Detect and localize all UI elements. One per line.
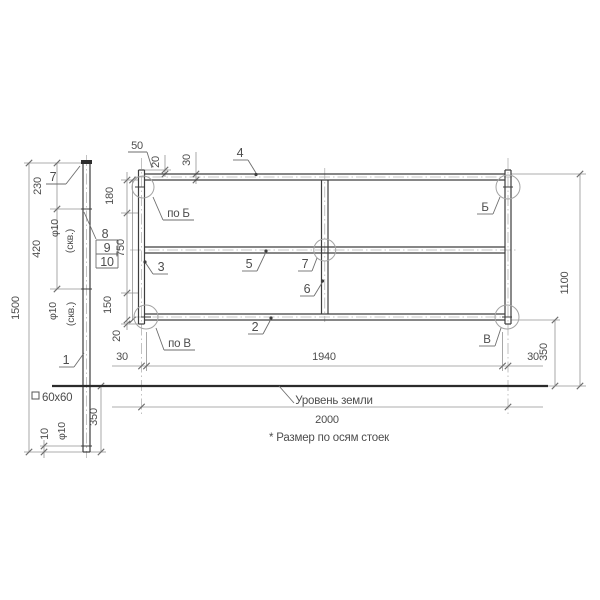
dim-post-axes-span: 2000 [315, 414, 339, 426]
item-label-1: 1 [63, 353, 70, 367]
item-label-2: 2 [252, 320, 259, 334]
dim-post-height: 1500 [10, 296, 22, 320]
ground-level-label: Уровень земли [295, 395, 372, 407]
square-section-icon [32, 392, 39, 399]
dim-top-total: 50 [131, 140, 143, 152]
post-top-cap [81, 160, 92, 164]
bottom-hole-diameter: φ10 [56, 422, 68, 440]
stack-item-10: 10 [100, 255, 114, 269]
section-marker-b: Б [481, 202, 488, 214]
dim-rail-to-ground: 350 [538, 343, 550, 361]
item-label-5: 5 [246, 257, 253, 271]
hole2-through-note: (скв.) [65, 302, 77, 326]
drawing-area: 1500 230 420 φ10 (скв.) φ10 (скв.) 350 1… [0, 0, 600, 600]
dim-height-above-ground: 1100 [559, 271, 571, 294]
dim-clear-length: 1940 [312, 351, 336, 363]
detail-circles [132, 175, 520, 329]
front-view-dimensions: 20 30 50 180 150 20 750 30 1940 30 2000 [102, 140, 586, 426]
item-label-7-front: 7 [302, 257, 309, 271]
post-profile-label: 60x60 [42, 392, 72, 404]
stack-item-8: 8 [102, 227, 109, 241]
hole2-diameter: φ10 [47, 302, 59, 320]
dim-left-end: 30 [116, 351, 128, 363]
section-marker-v: В [483, 334, 491, 346]
dim-rail-to-hole: 180 [104, 187, 116, 205]
item-label-4: 4 [237, 146, 244, 160]
item-label-3: 3 [158, 260, 165, 274]
dim-clear-height: 750 [115, 239, 127, 257]
dim-bottom-offset: 20 [111, 330, 123, 342]
dim-rail-height: 30 [181, 154, 193, 166]
hole1-diameter: φ10 [49, 219, 61, 237]
axes-note: * Размер по осям стоек [269, 432, 390, 444]
stack-item-9: 9 [104, 241, 111, 255]
item-label-7-side: 7 [50, 170, 57, 184]
drawing-canvas: 1500 230 420 φ10 (скв.) φ10 (скв.) 350 1… [0, 0, 600, 600]
dim-top-to-hole: 230 [32, 177, 44, 195]
dim-hole-spacing: 420 [31, 240, 43, 258]
dim-bottom-hole-offset: 10 [39, 428, 51, 440]
side-view-dimensions: 1500 230 420 φ10 (скв.) φ10 (скв.) 350 1… [10, 160, 106, 458]
item-label-6: 6 [304, 282, 311, 296]
hole1-through-note: (скв.) [64, 229, 76, 253]
view-label-v: по В [168, 338, 191, 350]
view-label-b: по Б [167, 208, 190, 220]
dim-hole-to-rail: 150 [102, 296, 114, 314]
